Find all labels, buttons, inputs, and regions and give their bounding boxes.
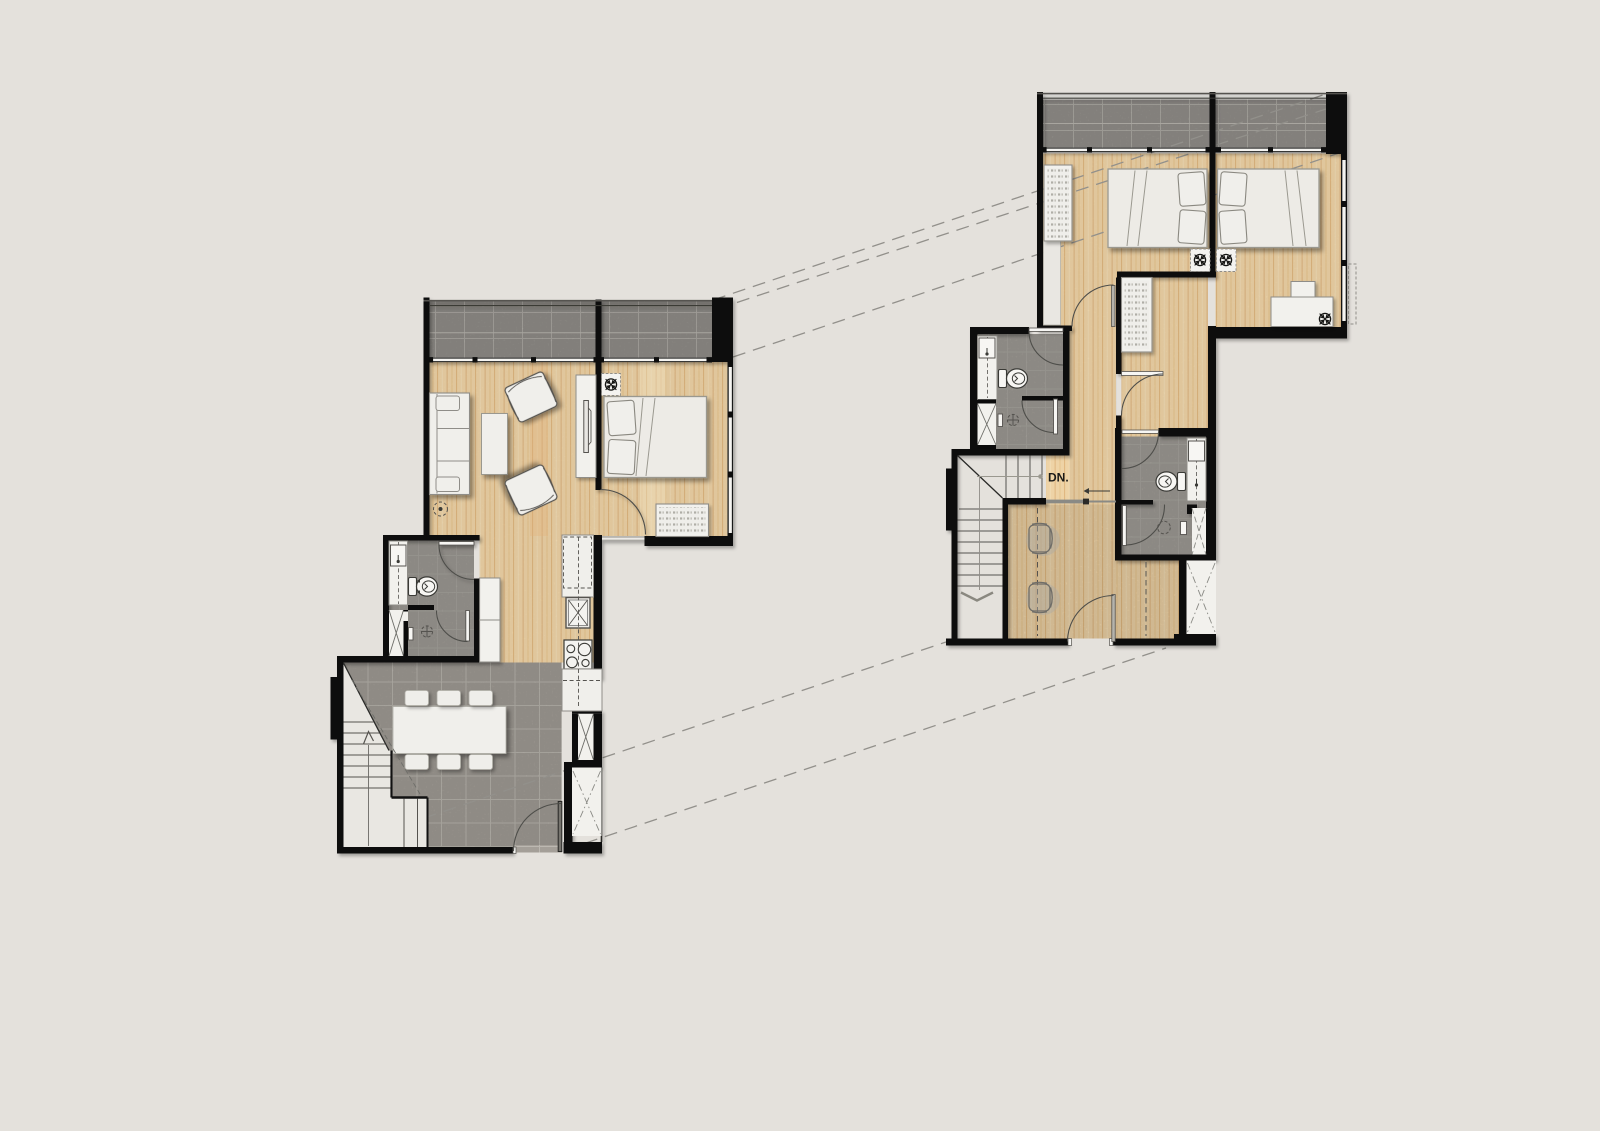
svg-text:DN.: DN.	[1048, 471, 1069, 485]
